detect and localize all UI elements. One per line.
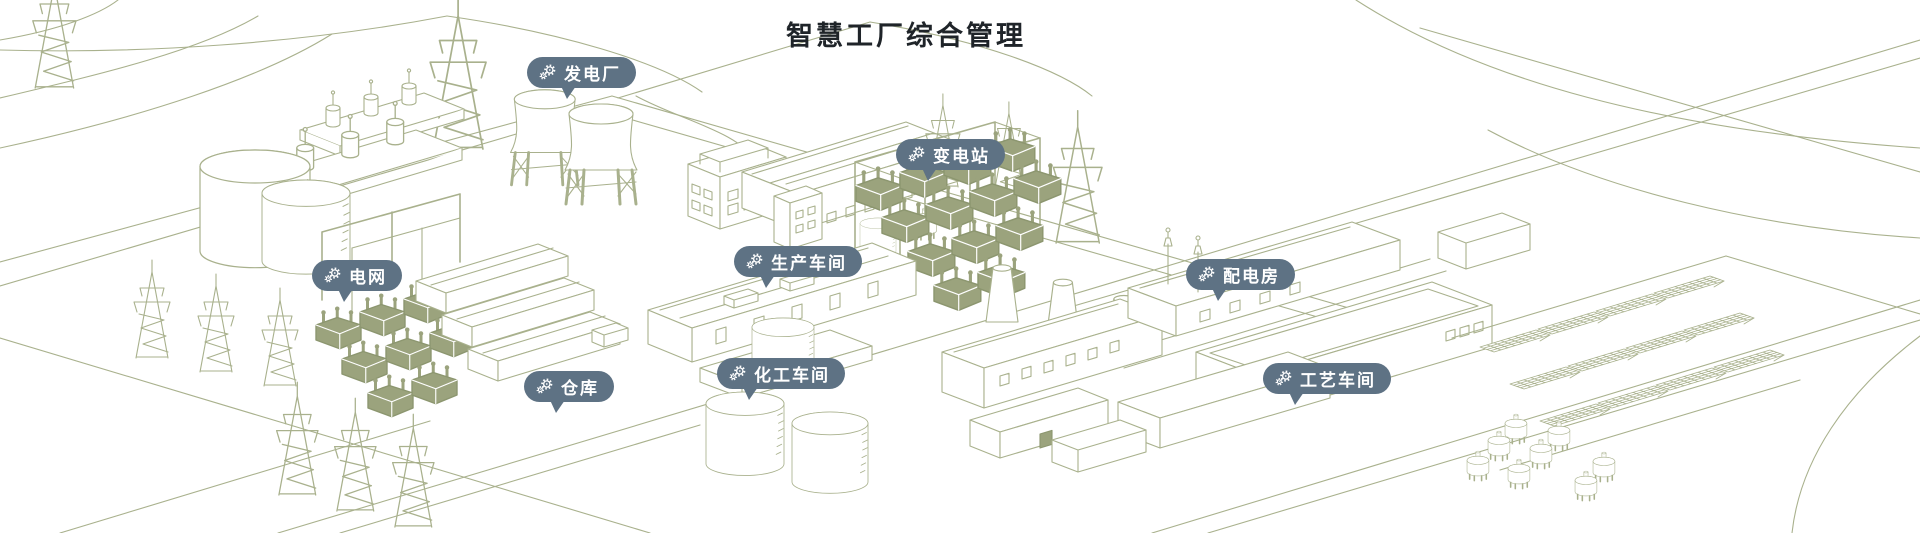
badge-substation[interactable]: 变电站 bbox=[896, 139, 1005, 170]
badge-power-plant[interactable]: 发电厂 bbox=[527, 57, 636, 88]
badge-label: 变电站 bbox=[933, 142, 990, 167]
badge-process-workshop[interactable]: 工艺车间 bbox=[1263, 363, 1391, 394]
badge-label: 生产车间 bbox=[771, 249, 847, 274]
badge-label: 发电厂 bbox=[564, 60, 621, 85]
cooling-towers bbox=[511, 90, 637, 204]
hopper-tanks bbox=[1467, 414, 1615, 501]
gears-icon bbox=[1274, 369, 1293, 388]
badge-power-grid[interactable]: 电网 bbox=[312, 260, 402, 291]
gears-icon bbox=[745, 252, 764, 271]
smart-factory-dashboard: 智慧工厂综合管理 发电厂 变电站 电网 生产车间 配电房 仓库 化工车间 工艺车… bbox=[0, 0, 1920, 533]
gears-icon bbox=[728, 364, 747, 383]
badge-label: 配电房 bbox=[1223, 262, 1280, 287]
gears-icon bbox=[538, 63, 557, 82]
badge-label: 工艺车间 bbox=[1300, 366, 1376, 391]
badge-chemical-workshop[interactable]: 化工车间 bbox=[717, 358, 845, 389]
badge-label: 化工车间 bbox=[754, 361, 830, 386]
gears-icon bbox=[535, 377, 554, 396]
warehouse-sheds bbox=[416, 244, 628, 381]
badge-distribution-room[interactable]: 配电房 bbox=[1186, 259, 1295, 290]
gears-icon bbox=[1197, 265, 1216, 284]
badge-warehouse[interactable]: 仓库 bbox=[524, 371, 614, 402]
badge-label: 仓库 bbox=[561, 374, 599, 399]
gears-icon bbox=[323, 266, 342, 285]
factory-map-illustration bbox=[0, 0, 1920, 533]
page-title: 智慧工厂综合管理 bbox=[786, 14, 1026, 53]
badge-label: 电网 bbox=[349, 263, 387, 288]
gears-icon bbox=[907, 145, 926, 164]
badge-production-workshop[interactable]: 生产车间 bbox=[734, 246, 862, 277]
